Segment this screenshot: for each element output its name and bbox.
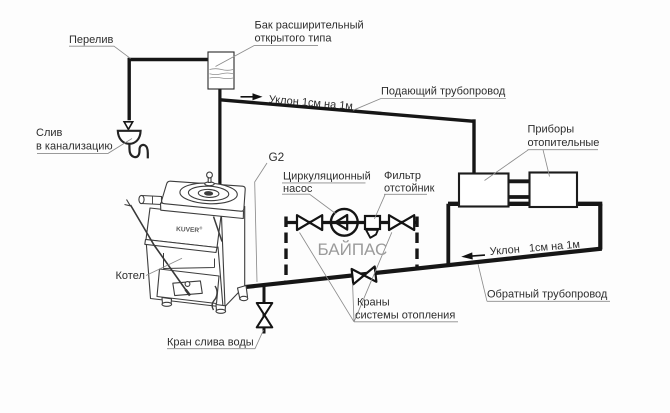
svg-text:G2: G2 bbox=[269, 150, 285, 164]
svg-text:Краны: Краны bbox=[357, 297, 390, 309]
svg-text:отстойник: отстойник bbox=[384, 182, 435, 194]
svg-text:насос: насос bbox=[283, 183, 313, 195]
svg-text:Бак расширительный: Бак расширительный bbox=[255, 20, 364, 32]
svg-text:Уклон 1см на 1м: Уклон 1см на 1м bbox=[268, 94, 353, 113]
svg-text:Фильтр: Фильтр bbox=[384, 170, 421, 182]
svg-text:отопительные: отопительные bbox=[528, 137, 600, 149]
svg-text:системы отопления: системы отопления bbox=[355, 310, 455, 322]
svg-text:Перелив: Перелив bbox=[69, 34, 113, 46]
svg-text:Обратный трубопровод: Обратный трубопровод bbox=[487, 288, 608, 300]
svg-text:Приборы: Приборы bbox=[528, 124, 575, 136]
svg-text:Кран слива воды: Кран слива воды bbox=[167, 337, 254, 349]
svg-text:Слив: Слив bbox=[36, 127, 63, 139]
svg-text:Подающий трубопровод: Подающий трубопровод bbox=[381, 86, 506, 98]
svg-text:в канализацию: в канализацию bbox=[36, 141, 113, 153]
svg-text:Циркуляционный: Циркуляционный bbox=[283, 171, 371, 183]
svg-text:БАЙПАС: БАЙПАС bbox=[318, 240, 388, 259]
svg-text:Котел: Котел bbox=[116, 270, 145, 282]
svg-text:открытого типа: открытого типа bbox=[255, 33, 333, 45]
